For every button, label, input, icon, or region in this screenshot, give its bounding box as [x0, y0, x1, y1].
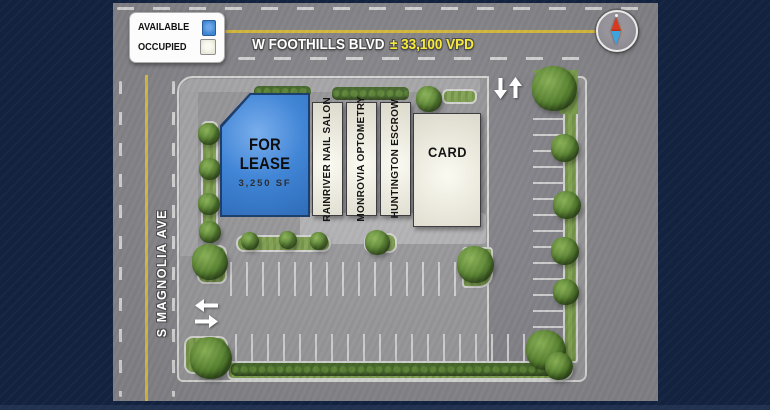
hedge-south-row [231, 363, 561, 376]
unit-label: CARD [428, 145, 467, 160]
top-street-label: W FOOTHILLS BLVD ± 33,100 VPD [246, 36, 480, 53]
tree [199, 158, 221, 180]
compass-south-needle [611, 31, 621, 45]
unit-monrovia-optometry: MONROVIA OPTOMETRY [346, 102, 377, 216]
tree [190, 337, 232, 379]
legend-occupied-label: OCCUPIED [138, 42, 187, 53]
unit-for-lease: FOR LEASE 3,250 SF [220, 93, 310, 217]
site-plan-frame: W FOOTHILLS BLVD ± 33,100 VPD S MAGNOLIA… [0, 0, 770, 410]
tree [365, 230, 390, 255]
unit-label: MONROVIA OPTOMETRY [356, 96, 367, 222]
top-road-lane-dashes-upper [117, 7, 654, 10]
tree [310, 232, 328, 250]
legend-occupied-swatch [200, 39, 216, 55]
left-street-label: S MAGNOLIA AVE [147, 203, 177, 343]
compass-north-dot [615, 14, 618, 17]
unit-label: HUNTINGTON ESCROW [390, 99, 401, 218]
top-street-name: W FOOTHILLS BLVD [252, 36, 384, 53]
for-lease-label: FOR LEASE [225, 136, 306, 174]
tree [198, 123, 220, 145]
tree [192, 244, 228, 280]
planter-northeast [442, 89, 477, 104]
tree [545, 352, 573, 380]
tree [416, 86, 442, 112]
unit-label: RAINRIVER NAIL SALON [322, 97, 333, 222]
compass-north-icon [596, 10, 638, 52]
driveway-arrow-left-icon [195, 299, 218, 312]
tree [532, 66, 577, 111]
tree [457, 246, 494, 283]
left-street-name: S MAGNOLIA AVE [155, 209, 169, 337]
frame-bottom-edge [0, 405, 770, 410]
for-lease-label-block: FOR LEASE 3,250 SF [220, 136, 310, 189]
legend-available-swatch [202, 20, 216, 36]
for-lease-size: 3,250 SF [220, 178, 310, 189]
unit-huntington-escrow: HUNTINGTON ESCROW [380, 102, 411, 216]
tree [553, 191, 581, 219]
top-street-traffic-count: ± 33,100 VPD [390, 36, 474, 53]
parking-row-bottom [235, 334, 527, 364]
top-road-lane-dashes-lower [238, 57, 593, 60]
driveway-arrow-up-icon [509, 77, 522, 98]
west-walkway [180, 92, 198, 256]
tree [198, 193, 220, 215]
parking-row-middle [230, 262, 460, 296]
unit-card: CARD [413, 113, 481, 227]
tree [553, 279, 579, 305]
tree [241, 232, 259, 250]
unit-rainriver-nail-salon: RAINRIVER NAIL SALON [312, 102, 343, 216]
driveway-arrow-right-icon [195, 315, 218, 328]
left-road-lane-dashes-outer [119, 81, 122, 397]
top-road-center-line [223, 30, 603, 33]
legend-row-occupied: OCCUPIED [138, 39, 216, 55]
compass-north-needle [611, 17, 621, 31]
legend-available-label: AVAILABLE [138, 22, 189, 33]
tree [551, 237, 579, 265]
legend: AVAILABLE OCCUPIED [129, 12, 225, 63]
tree [199, 221, 221, 243]
driveway-arrow-down-icon [494, 78, 507, 99]
tree [551, 134, 579, 162]
site-plan-map: W FOOTHILLS BLVD ± 33,100 VPD S MAGNOLIA… [113, 3, 658, 401]
tree [279, 231, 297, 249]
legend-row-available: AVAILABLE [138, 20, 216, 36]
